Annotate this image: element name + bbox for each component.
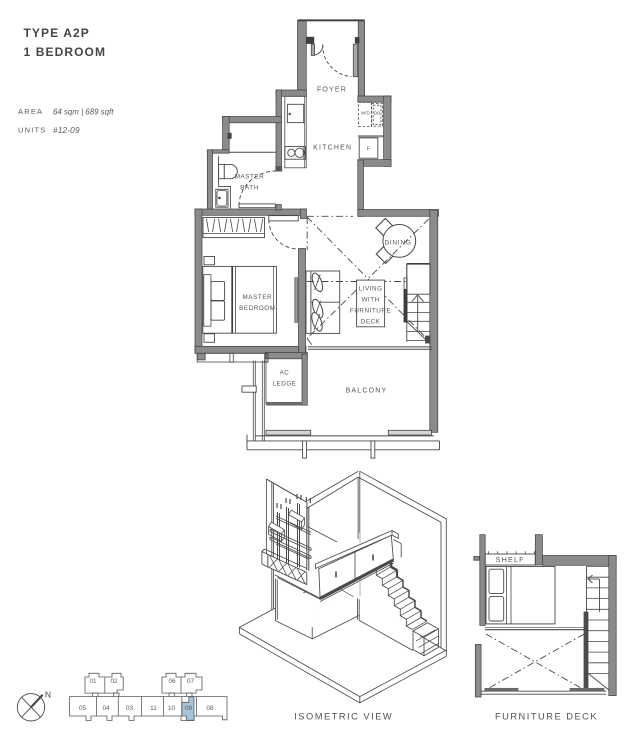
svg-text:01: 01 bbox=[89, 678, 97, 685]
svg-text:10: 10 bbox=[168, 705, 176, 712]
svg-text:64 sqm | 689 sqft: 64 sqm | 689 sqft bbox=[53, 108, 114, 117]
svg-text:MASTER: MASTER bbox=[235, 174, 265, 181]
svg-text:1 BEDROOM: 1 BEDROOM bbox=[24, 45, 107, 59]
svg-text:#12-09: #12-09 bbox=[53, 126, 80, 135]
svg-text:KITCHEN: KITCHEN bbox=[313, 144, 352, 151]
svg-text:MASTER: MASTER bbox=[243, 294, 273, 301]
svg-text:03: 03 bbox=[126, 705, 134, 712]
svg-text:BEDROOM: BEDROOM bbox=[239, 305, 275, 312]
svg-text:SHELF: SHELF bbox=[496, 555, 525, 564]
svg-text:W/D: W/D bbox=[361, 110, 370, 115]
svg-text:08: 08 bbox=[206, 705, 214, 712]
svg-text:11: 11 bbox=[150, 705, 157, 712]
svg-text:09: 09 bbox=[185, 705, 193, 712]
svg-text:DECK: DECK bbox=[361, 319, 381, 326]
svg-text:AREA: AREA bbox=[18, 107, 43, 116]
svg-text:FURNITURE DECK: FURNITURE DECK bbox=[495, 712, 598, 722]
svg-text:LEDGE: LEDGE bbox=[272, 381, 296, 388]
svg-text:F: F bbox=[367, 146, 370, 152]
svg-text:DB: DB bbox=[374, 110, 381, 115]
svg-text:LIVING: LIVING bbox=[359, 286, 383, 293]
svg-text:BALCONY: BALCONY bbox=[346, 388, 388, 395]
svg-text:07: 07 bbox=[187, 678, 195, 685]
svg-text:TYPE A2P: TYPE A2P bbox=[24, 26, 90, 40]
svg-text:FOYER: FOYER bbox=[317, 87, 347, 94]
svg-text:UNITS: UNITS bbox=[18, 126, 47, 135]
svg-text:ISOMETRIC VIEW: ISOMETRIC VIEW bbox=[294, 712, 393, 722]
svg-text:N: N bbox=[45, 690, 51, 700]
svg-text:BATH: BATH bbox=[240, 185, 259, 192]
svg-text:05: 05 bbox=[79, 705, 87, 712]
svg-text:04: 04 bbox=[102, 705, 110, 712]
svg-text:AC: AC bbox=[280, 370, 290, 377]
svg-text:WITH: WITH bbox=[361, 297, 379, 304]
svg-text:06: 06 bbox=[168, 678, 176, 685]
svg-text:02: 02 bbox=[110, 678, 118, 685]
svg-text:FURNITURE: FURNITURE bbox=[350, 308, 391, 315]
